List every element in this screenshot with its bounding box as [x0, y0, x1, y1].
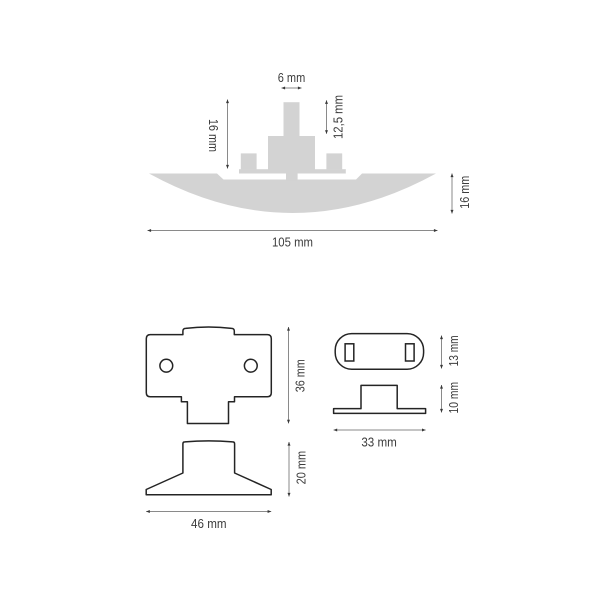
svg-text:13 mm: 13 mm — [446, 335, 461, 366]
svg-text:16 mm: 16 mm — [457, 176, 472, 209]
svg-text:46 mm: 46 mm — [191, 516, 227, 531]
svg-text:33 mm: 33 mm — [361, 435, 397, 450]
svg-text:6 mm: 6 mm — [278, 70, 306, 85]
svg-text:12,5 mm: 12,5 mm — [330, 95, 345, 139]
svg-text:16 mm: 16 mm — [206, 119, 221, 152]
svg-text:20 mm: 20 mm — [294, 451, 309, 485]
svg-text:10 mm: 10 mm — [446, 382, 461, 414]
svg-text:105 mm: 105 mm — [272, 235, 313, 250]
svg-text:36 mm: 36 mm — [293, 359, 308, 392]
